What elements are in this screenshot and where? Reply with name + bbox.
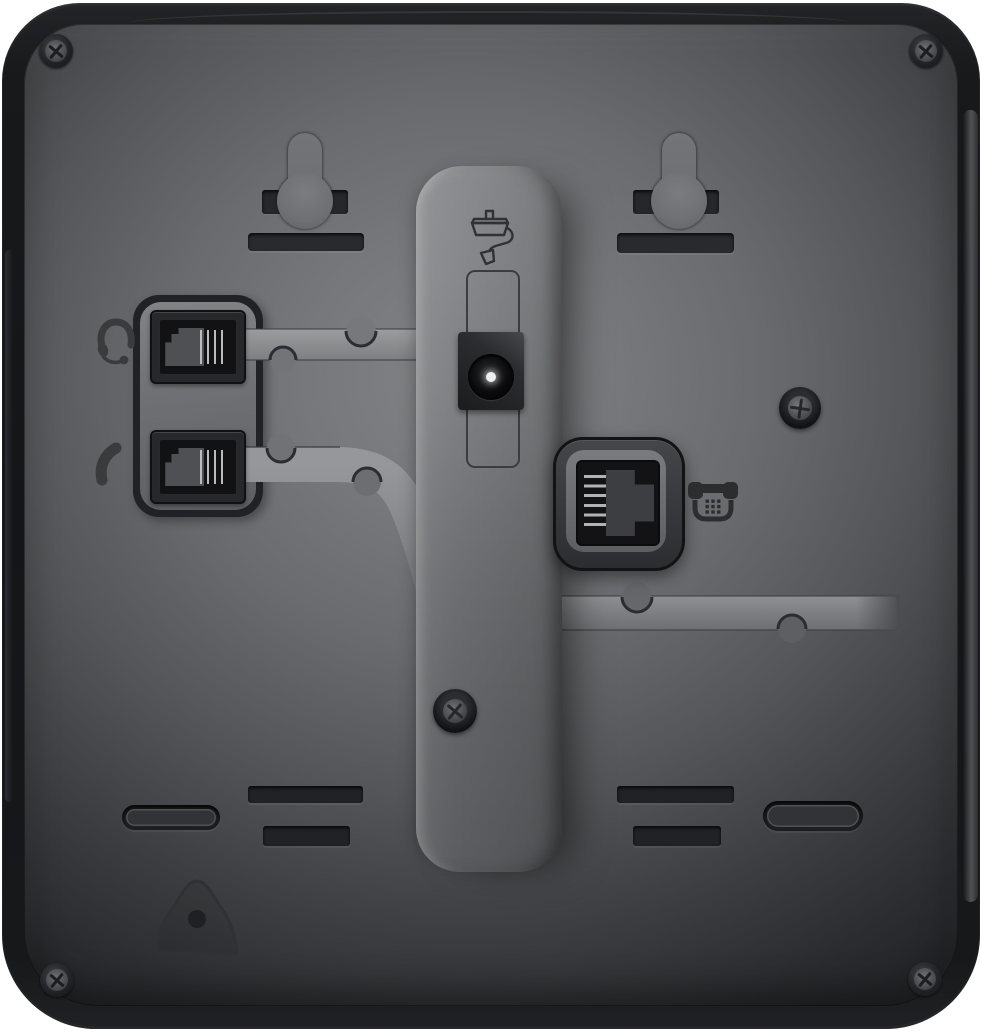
product-photo-stage (0, 0, 982, 1032)
headset-port-recess (159, 319, 237, 375)
handset-port-keyway (165, 448, 204, 486)
handset-port-recess (159, 439, 237, 495)
line-port-pins (584, 475, 607, 530)
headset-port-keyway (165, 328, 204, 366)
headset-icon (94, 318, 140, 370)
cable-guide-right (546, 582, 900, 643)
corner-screw-bottom-left (40, 963, 74, 997)
line-port-socket (576, 460, 660, 546)
line-port-keyway (606, 470, 654, 536)
handset-icon (94, 440, 136, 488)
center-screw (433, 689, 477, 733)
bell-recess (155, 881, 237, 953)
handset-port-pins (200, 450, 227, 484)
power-jack-pin (486, 372, 496, 382)
corner-screw-bottom-right (908, 962, 942, 996)
corner-screw-top-left (39, 34, 73, 68)
headset-port (150, 310, 246, 384)
corner-screw-top-right (909, 34, 943, 68)
cable-guide-lower (238, 434, 436, 600)
power-adapter-icon (466, 208, 514, 270)
headset-port-pins (200, 330, 227, 364)
handset-port (150, 430, 246, 504)
bell-recess-hole (188, 910, 206, 928)
telephone-icon (686, 478, 740, 524)
cable-guide-upper (238, 316, 420, 373)
side-screw (779, 387, 821, 429)
